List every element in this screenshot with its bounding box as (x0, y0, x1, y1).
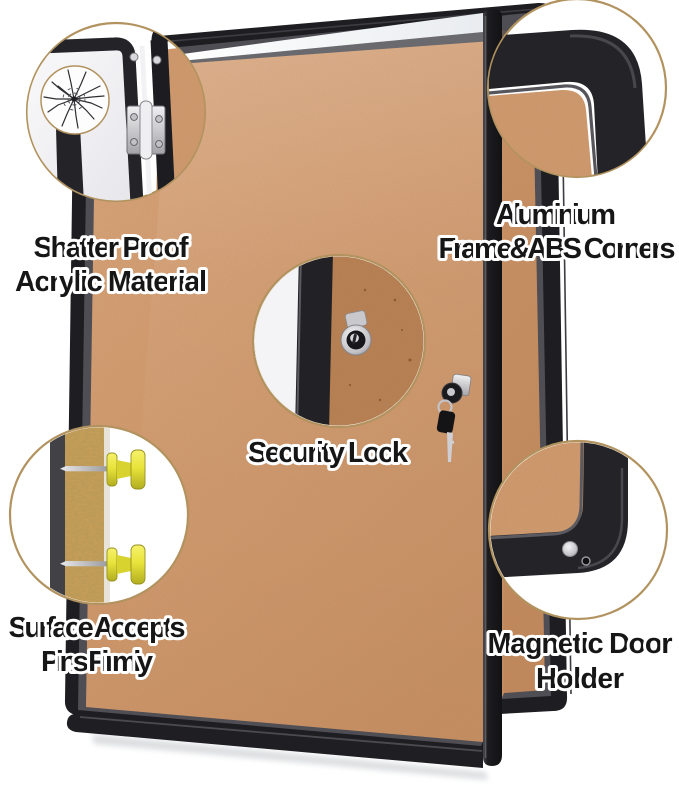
shatter-crack-icon (41, 66, 109, 134)
door-left-stile (56, 126, 84, 204)
cork-cross-section-texture (65, 424, 104, 606)
pin-flange (107, 548, 117, 581)
label-aluminium-frame-line2: Frame&ABS Corners (439, 233, 676, 265)
pin-cap (131, 545, 145, 584)
label-pins-line1: Surface Accepts (9, 612, 186, 644)
product-image: Shatter Proof Acrylic Material Aluminium… (0, 0, 679, 791)
pin-needle (60, 466, 107, 471)
label-pins-line2: Pins Firmly (41, 646, 153, 678)
hinge-icon (127, 101, 165, 159)
screw (130, 53, 138, 61)
cam-lock-cylinder (447, 388, 455, 396)
pin-flange (107, 453, 117, 486)
label-magnetic-line2: Holder (536, 663, 624, 695)
magnet-icon (563, 542, 578, 557)
screw (153, 56, 161, 64)
label-shatter-proof-line2: Acrylic Material (15, 266, 207, 298)
pin-cap (131, 450, 145, 489)
corner-screw-hole (582, 557, 590, 565)
label-magnetic-line1: Magnetic Door (488, 628, 673, 660)
label-aluminium-frame-line1: Aluminium (496, 199, 616, 231)
bulletin-board-scene: Shatter Proof Acrylic Material Aluminium… (0, 0, 679, 791)
pin-neck (117, 555, 131, 574)
pin-needle (60, 561, 107, 566)
board-back-bar (50, 424, 65, 606)
label-security-lock: Security Lock (248, 437, 409, 469)
label-shatter-proof-line1: Shatter Proof (34, 232, 189, 264)
pin-neck (117, 460, 131, 479)
callout-push-pins-in-cork-detail (10, 424, 188, 606)
